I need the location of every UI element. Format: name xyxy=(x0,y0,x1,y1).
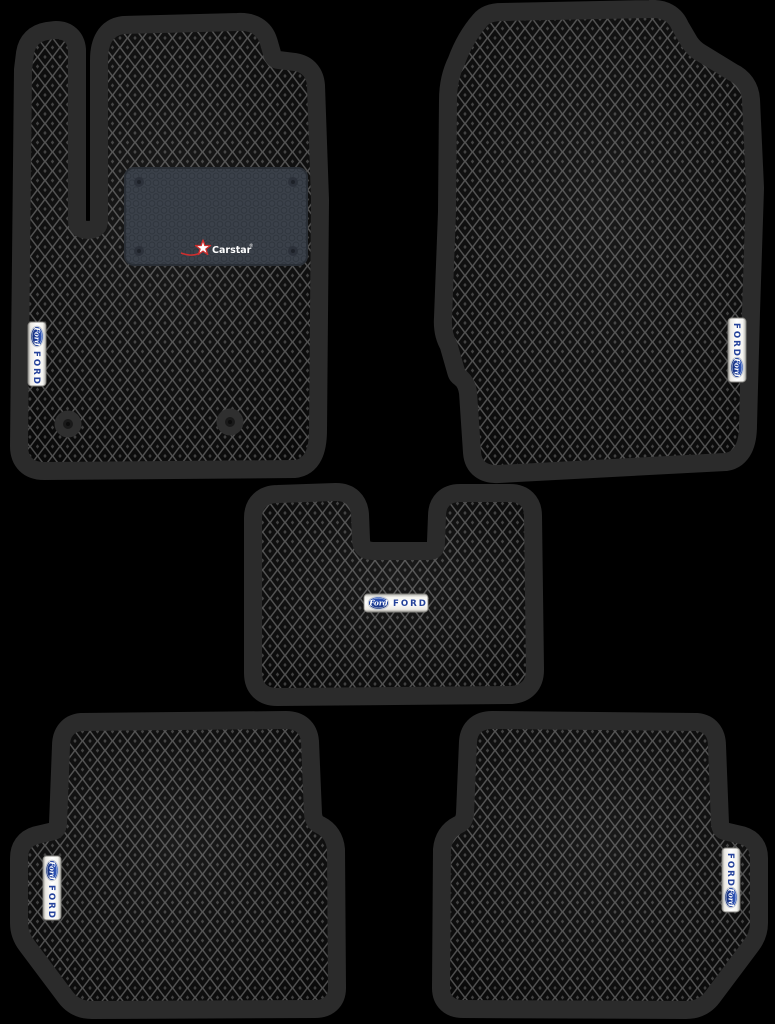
rear-left-mat xyxy=(28,729,328,1001)
floor-mat-set-image: Ford FORD FORD Ford xyxy=(0,0,775,1024)
front-passenger-mat xyxy=(452,18,746,465)
product-photo: Ford FORD FORD Ford xyxy=(0,0,775,1024)
fastener-hole xyxy=(55,411,82,438)
passenger-mat-sheen xyxy=(452,18,746,465)
ford-badge xyxy=(722,848,740,912)
ford-badge xyxy=(28,322,46,386)
rear-right-mat xyxy=(450,729,750,1001)
front-driver-mat: Carstar ® xyxy=(28,31,311,462)
rear-left-mat-sheen xyxy=(28,729,328,1001)
fastener-hole xyxy=(217,409,244,436)
ford-badge xyxy=(43,856,61,920)
carstar-registered-mark: ® xyxy=(249,242,254,249)
ford-badge xyxy=(728,318,746,382)
heel-pad-rivet-center xyxy=(291,180,295,184)
heel-pad: Carstar ® xyxy=(125,168,307,265)
rear-right-mat-sheen xyxy=(450,729,750,1001)
carstar-brand-text: Carstar xyxy=(212,245,252,256)
heel-pad-rivet-center xyxy=(291,249,295,253)
heel-pad-rivet-center xyxy=(137,249,141,253)
heel-pad-rivet-center xyxy=(137,180,141,184)
ford-badge xyxy=(364,594,428,612)
